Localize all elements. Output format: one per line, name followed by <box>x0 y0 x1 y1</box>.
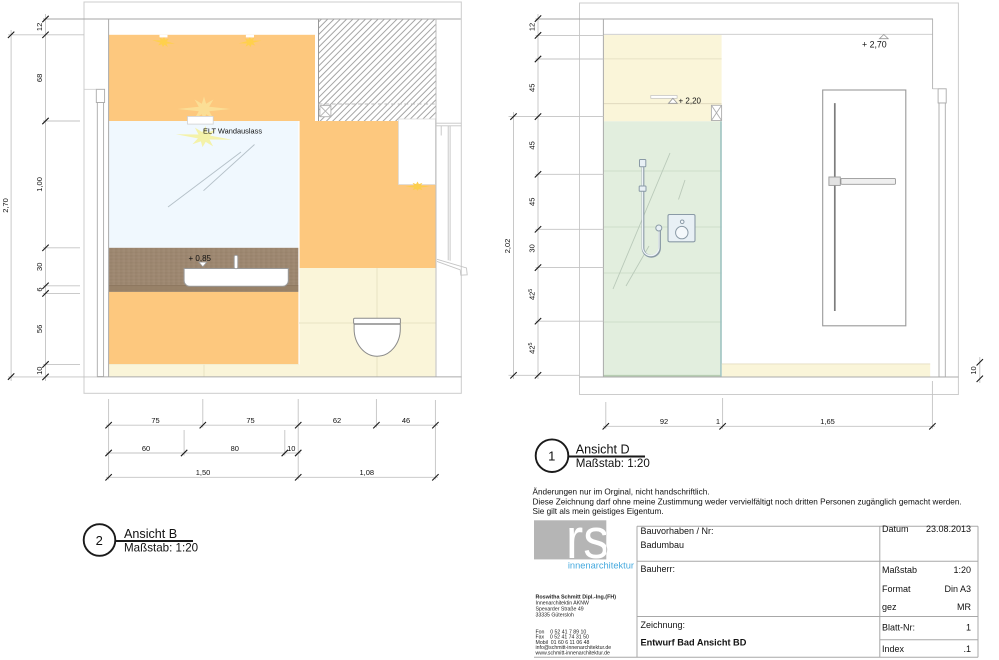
svg-text:Zeichnung:: Zeichnung: <box>641 620 686 630</box>
svg-text:10: 10 <box>35 367 44 375</box>
svg-text:75: 75 <box>246 416 254 425</box>
svg-text:Sie gilt als mein geistiges Ei: Sie gilt als mein geistiges Eigentum. <box>533 507 664 516</box>
svg-text:Format: Format <box>882 584 911 594</box>
svg-text:75: 75 <box>151 416 159 425</box>
svg-text:ELT Wandauslass: ELT Wandauslass <box>203 127 262 136</box>
svg-text:1,00: 1,00 <box>35 177 44 192</box>
svg-text:1: 1 <box>548 449 555 464</box>
svg-text:68: 68 <box>35 74 44 82</box>
svg-text:1: 1 <box>966 622 971 632</box>
svg-text:30: 30 <box>35 263 44 271</box>
svg-text:.1: .1 <box>963 644 971 654</box>
svg-text:2,70: 2,70 <box>1 198 10 213</box>
svg-text:1: 1 <box>716 417 720 426</box>
svg-text:46: 46 <box>402 416 410 425</box>
svg-text:45: 45 <box>527 141 536 149</box>
svg-text:Din A3: Din A3 <box>944 584 971 594</box>
svg-text:1,50: 1,50 <box>196 468 211 477</box>
svg-text:innenarchitektur: innenarchitektur <box>568 561 634 571</box>
svg-text:1,08: 1,08 <box>359 468 374 477</box>
svg-text:12: 12 <box>527 23 536 31</box>
svg-text:Maßstab: 1:20: Maßstab: 1:20 <box>576 457 650 470</box>
svg-text:6: 6 <box>35 288 44 292</box>
svg-text:+ 2,70: + 2,70 <box>862 40 887 50</box>
svg-text:Blatt-Nr:: Blatt-Nr: <box>882 622 915 632</box>
svg-text:45: 45 <box>527 84 536 92</box>
svg-text:+ 0,85: + 0,85 <box>189 254 212 263</box>
svg-text:+ 2,20: + 2,20 <box>679 96 702 105</box>
svg-text:10: 10 <box>287 444 295 453</box>
svg-text:33335 Gütersloh: 33335 Gütersloh <box>536 612 574 618</box>
svg-text:60: 60 <box>142 444 150 453</box>
svg-text:Änderungen nur im Orginal, nic: Änderungen nur im Orginal, nicht handsch… <box>533 486 710 496</box>
svg-text:MR: MR <box>957 602 971 612</box>
svg-text:gez: gez <box>882 602 897 612</box>
svg-text:Badumbau: Badumbau <box>641 540 685 550</box>
svg-text:Maßstab: Maßstab <box>882 565 917 575</box>
svg-text:Ansicht D: Ansicht D <box>576 443 630 457</box>
svg-text:1,65: 1,65 <box>820 417 835 426</box>
svg-text:Index: Index <box>882 644 905 654</box>
svg-text:Entwurf Bad Ansicht BD: Entwurf Bad Ansicht BD <box>641 638 747 648</box>
svg-text:1:20: 1:20 <box>953 565 971 575</box>
svg-text:2,02: 2,02 <box>503 239 512 254</box>
svg-text:Roswitha Schmitt Dipl.-Ing.(FH: Roswitha Schmitt Dipl.-Ing.(FH) <box>536 594 617 600</box>
svg-text:30: 30 <box>527 244 536 252</box>
svg-text:Maßstab: 1:20: Maßstab: 1:20 <box>124 542 198 555</box>
svg-text:80: 80 <box>231 444 239 453</box>
svg-text:10: 10 <box>969 366 978 374</box>
svg-text:45: 45 <box>527 198 536 206</box>
svg-text:62: 62 <box>333 416 341 425</box>
svg-text:12: 12 <box>35 23 44 31</box>
svg-text:92: 92 <box>660 417 668 426</box>
svg-text:Bauherr:: Bauherr: <box>641 564 676 574</box>
svg-text:Bauvorhaben / Nr:: Bauvorhaben / Nr: <box>641 526 714 536</box>
svg-text:2: 2 <box>96 533 103 548</box>
svg-text:23.08.2013: 23.08.2013 <box>926 524 971 534</box>
svg-text:Datum: Datum <box>882 524 909 534</box>
svg-text:Ansicht B: Ansicht B <box>124 527 177 541</box>
svg-text:Diese Zeichnung darf ohne mein: Diese Zeichnung darf ohne meine Zustimmu… <box>533 497 962 506</box>
svg-text:www.schmitt-innenarchitektur.d: www.schmitt-innenarchitektur.de <box>536 650 610 656</box>
svg-text:56: 56 <box>35 325 44 333</box>
